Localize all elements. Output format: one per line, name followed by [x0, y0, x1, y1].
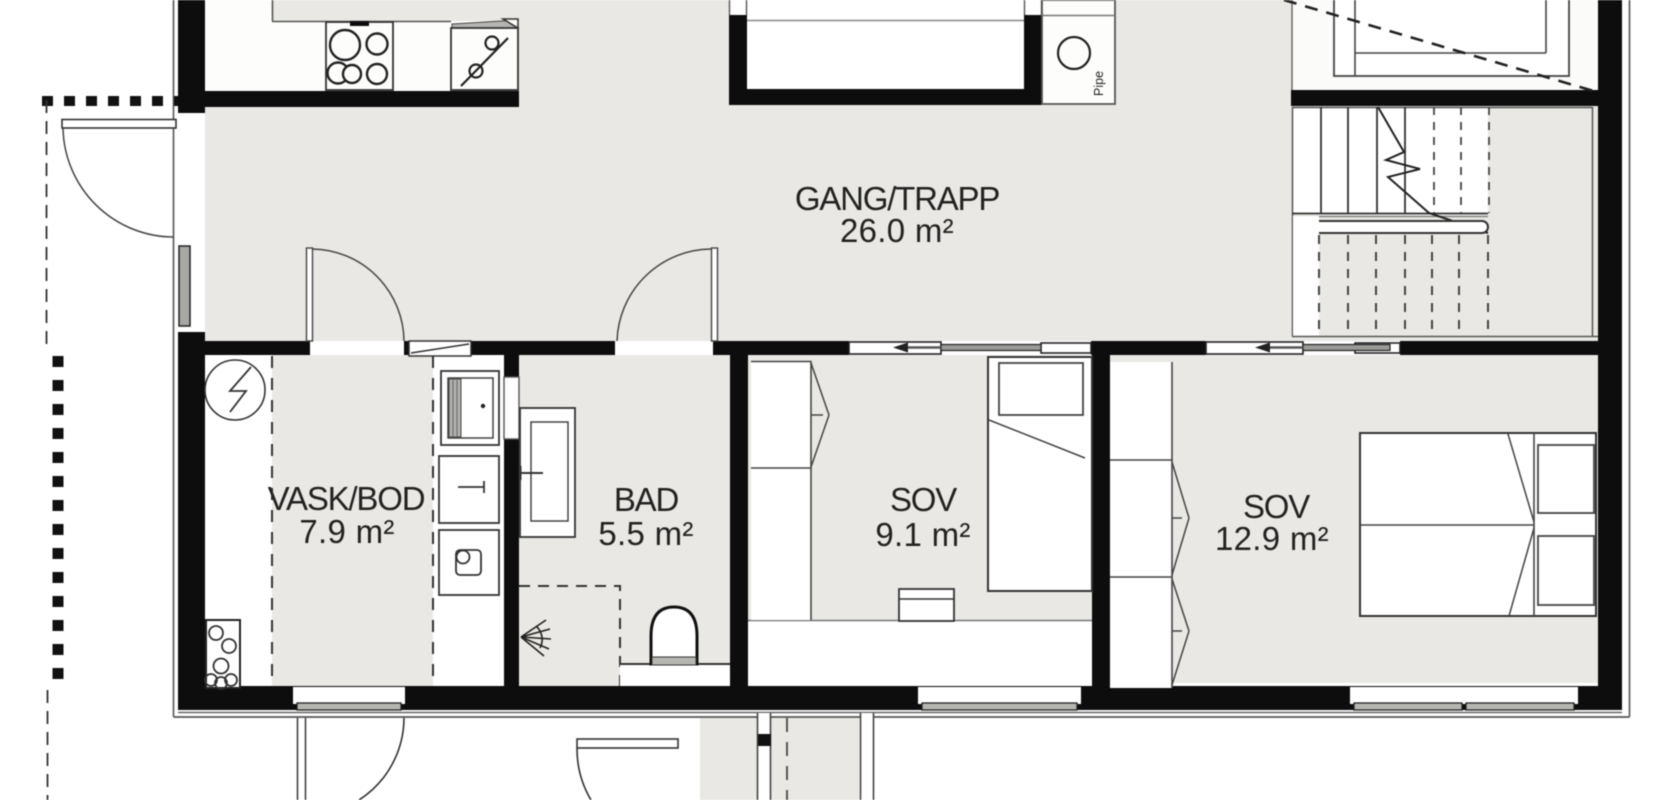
svg-text:SOV: SOV	[890, 481, 957, 518]
svg-text:5.5 m²: 5.5 m²	[598, 515, 693, 552]
svg-text:26.0 m²: 26.0 m²	[840, 212, 954, 249]
svg-text:12.9 m²: 12.9 m²	[1215, 520, 1329, 557]
svg-text:9.1 m²: 9.1 m²	[875, 516, 970, 553]
svg-text:VASK/BOD: VASK/BOD	[268, 480, 425, 517]
svg-text:BAD: BAD	[614, 481, 679, 518]
svg-text:Pipe: Pipe	[1092, 71, 1106, 96]
svg-text:7.9 m²: 7.9 m²	[299, 513, 394, 550]
